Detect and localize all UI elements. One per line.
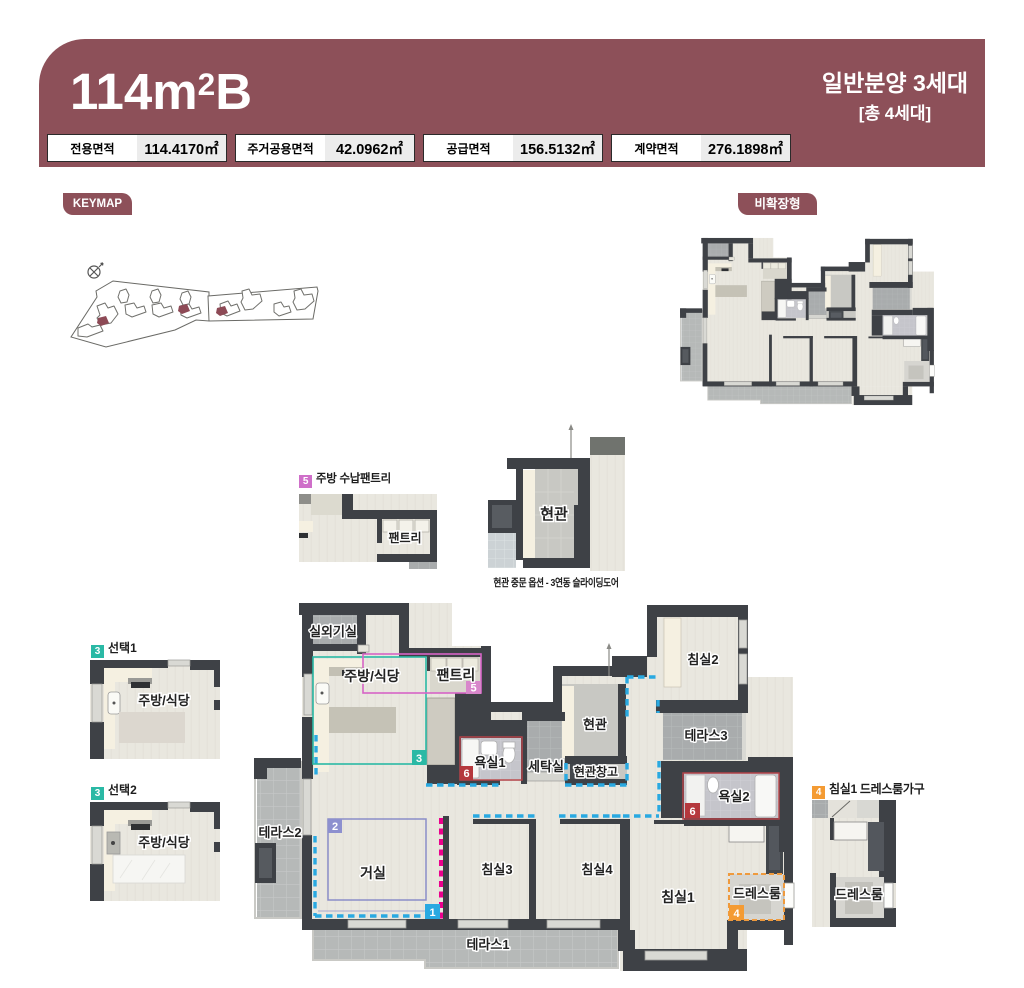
svg-text:주방/식당: 주방/식당: [344, 668, 400, 684]
svg-text:6: 6: [463, 768, 469, 780]
svg-text:테라스3: 테라스3: [684, 728, 727, 743]
svg-text:팬트리: 팬트리: [388, 530, 421, 545]
svg-text:거실: 거실: [360, 865, 386, 881]
svg-text:침실2: 침실2: [687, 652, 718, 667]
svg-text:테라스1: 테라스1: [466, 937, 509, 952]
svg-text:현관: 현관: [540, 506, 568, 523]
svg-text:현관: 현관: [583, 717, 607, 732]
svg-text:주방/식당: 주방/식당: [138, 693, 189, 708]
svg-text:1: 1: [429, 907, 435, 919]
svg-text:침실4: 침실4: [581, 862, 613, 877]
svg-text:6: 6: [689, 806, 695, 818]
svg-text:세탁실: 세탁실: [528, 759, 564, 774]
svg-text:침실3: 침실3: [481, 862, 512, 877]
svg-text:4: 4: [733, 908, 740, 920]
svg-text:2: 2: [332, 821, 338, 833]
svg-text:욕실2: 욕실2: [718, 789, 749, 804]
svg-text:실외기실: 실외기실: [309, 624, 357, 639]
svg-text:욕실1: 욕실1: [474, 755, 505, 770]
svg-text:3: 3: [416, 753, 422, 765]
svg-text:팬트리: 팬트리: [437, 667, 476, 683]
svg-text:주방/식당: 주방/식당: [138, 835, 189, 850]
svg-text:5: 5: [470, 683, 476, 695]
svg-text:드레스룸: 드레스룸: [835, 887, 883, 902]
svg-text:현관창고: 현관창고: [574, 764, 618, 779]
svg-text:테라스2: 테라스2: [258, 825, 301, 840]
svg-text:침실1: 침실1: [661, 889, 695, 905]
svg-text:드레스룸: 드레스룸: [733, 886, 781, 901]
